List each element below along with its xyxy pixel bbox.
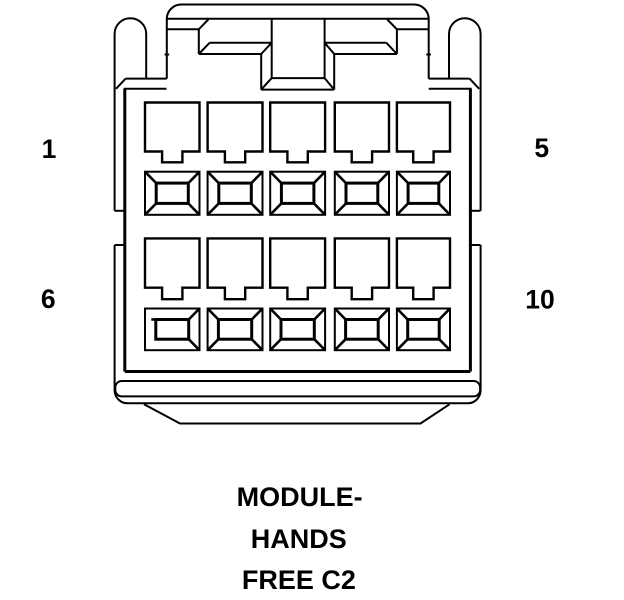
svg-text:MODULE-: MODULE- <box>237 482 363 512</box>
svg-text:6: 6 <box>41 284 56 314</box>
svg-text:HANDS: HANDS <box>251 524 347 554</box>
svg-text:5: 5 <box>534 133 549 163</box>
svg-text:FREE C2: FREE C2 <box>242 565 356 595</box>
svg-text:10: 10 <box>525 285 554 315</box>
svg-text:1: 1 <box>42 134 57 164</box>
